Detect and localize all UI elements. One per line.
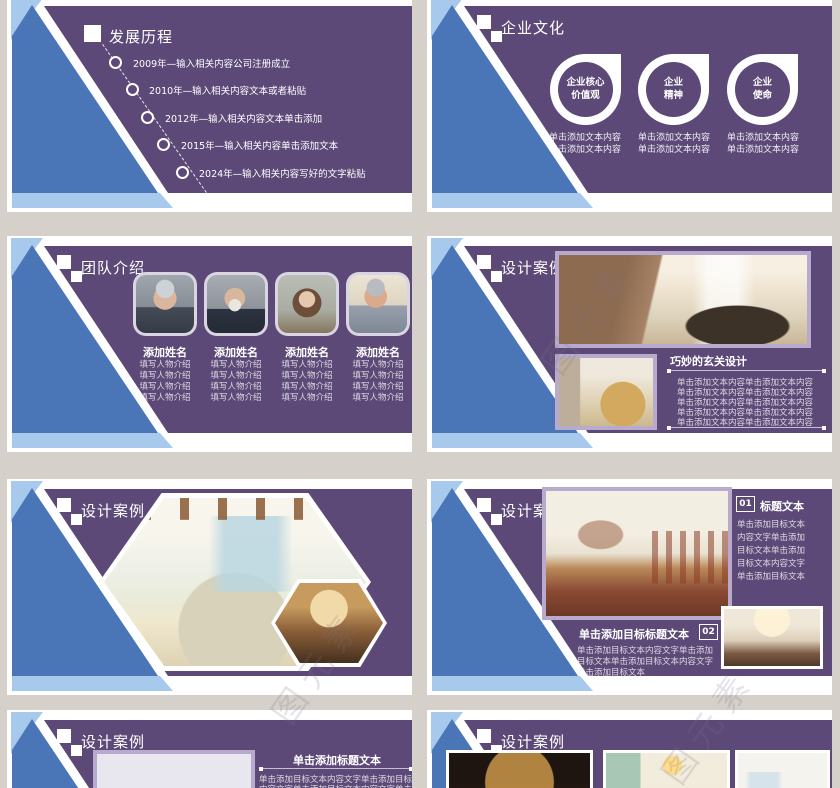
timeline-item: 2012年—输入相关内容文本单击添加 — [165, 111, 322, 125]
caption-line: 单击添加文本内容 — [549, 144, 621, 156]
block1-line: 单击添加目标文本 — [737, 518, 805, 530]
slide-thumb-case5[interactable]: 设计案例 — [427, 710, 832, 788]
divider — [668, 427, 825, 428]
slide-thumb-case1[interactable]: 设计案例 巧妙的玄关设计 单击添加文本内容单击添加文本内容 单击添加文本内容单击… — [427, 236, 832, 452]
title-square-icon — [57, 255, 71, 269]
member-photo-card — [275, 272, 339, 336]
photo-chinese-livingroom — [542, 487, 732, 620]
title-square-icon — [477, 15, 491, 29]
culture-caption: 单击添加文本内容 单击添加文本内容 — [727, 132, 799, 156]
slide-thumb-team[interactable]: 团队介绍 添加姓名 添加姓名 添加姓名 添加姓名 填写人物介绍 填写人物介绍 填… — [7, 236, 412, 452]
block1-line: 目标文本内容文字 — [737, 557, 805, 569]
culture-drop-shape: 企业核心 价值观 — [550, 54, 621, 125]
culture-circle-label: 企业 精神 — [646, 62, 701, 117]
slide-thumb-case3[interactable]: 设计案例 01 标题文本 单击添加目标文本 内容文字单击添加 目标文本单击添加 … — [427, 479, 832, 695]
timeline-item: 2024年—输入相关内容写好的文字粘贴 — [199, 166, 366, 180]
circle-label-line: 价值观 — [571, 90, 600, 102]
culture-drop-shape: 企业 精神 — [638, 54, 709, 125]
ceiling-room-image — [97, 754, 251, 788]
timeline-item: 2009年—输入相关内容公司注册成立 — [133, 56, 290, 70]
template-preview-canvas: 发展历程 2009年—输入相关内容公司注册成立 2010年—输入相关内容文本或者… — [0, 0, 840, 788]
member-photo-card — [346, 272, 410, 336]
divider — [668, 370, 825, 371]
stairs-image — [559, 358, 653, 426]
slide-title: 设计案例 — [81, 500, 145, 521]
photo-hallway-wardrobe — [603, 750, 730, 788]
slide-thumb-culture[interactable]: 企业文化 企业核心 价值观 企业 精神 企业 使命 单击添加文本内容 单击添加文… — [427, 0, 832, 212]
member-portrait — [349, 275, 407, 333]
member-photo-card — [204, 272, 268, 336]
title-square-icon — [477, 255, 491, 269]
member-desc: 填写人物介绍 填写人物介绍 填写人物介绍 填写人物介绍 — [336, 360, 412, 404]
photo-bar-room — [446, 750, 593, 788]
caption-line: 单击添加文本内容 — [638, 132, 710, 144]
title-square-icon — [477, 729, 491, 743]
slide-title: 团队介绍 — [81, 257, 145, 278]
culture-caption: 单击添加文本内容 单击添加文本内容 — [638, 132, 710, 156]
slide-title: 设计案例 — [501, 731, 565, 752]
timeline-dot — [157, 138, 170, 151]
chinese-room-small-image — [724, 609, 820, 666]
member-photo-card — [133, 272, 197, 336]
divider — [260, 768, 412, 769]
circle-label-line: 企业 — [664, 77, 683, 89]
culture-caption: 单击添加文本内容 单击添加文本内容 — [549, 132, 621, 156]
caption-line: 单击添加文本内容 — [549, 132, 621, 144]
timeline-dot — [126, 83, 139, 96]
culture-circle-label: 企业 使命 — [735, 62, 790, 117]
photo-entryway-stairs — [555, 354, 657, 430]
title-square-icon — [57, 498, 71, 512]
block1-line: 目标文本单击添加 — [737, 544, 805, 556]
timeline-dot — [141, 111, 154, 124]
block1-line: 单击添加目标文本 — [737, 570, 805, 582]
circle-label-line: 企业 — [753, 77, 772, 89]
case-heading: 巧妙的玄关设计 — [670, 353, 747, 369]
chinese-room-image — [546, 491, 728, 616]
circle-label-line: 使命 — [753, 90, 772, 102]
number-badge-01: 01 — [736, 496, 755, 512]
timeline-item: 2015年—输入相关内容单击添加文本 — [181, 138, 338, 152]
hallway-image — [606, 753, 727, 788]
member-portrait — [207, 275, 265, 333]
slide-thumb-case4[interactable]: 设计案例 单击添加标题文本 单击添加目标文本内容文字单击添加目标文本 内容文字单… — [7, 710, 412, 788]
case-heading: 单击添加标题文本 — [262, 752, 412, 768]
culture-circle-label: 企业核心 价值观 — [558, 62, 613, 117]
slide-title: 发展历程 — [109, 26, 173, 47]
culture-drop-shape: 企业 使命 — [727, 54, 798, 125]
timeline-item: 2010年—输入相关内容文本或者粘贴 — [149, 83, 306, 97]
caption-line: 单击添加文本内容 — [727, 144, 799, 156]
slide-title: 设计案例 — [81, 731, 145, 752]
photo-ceiling-room — [93, 750, 255, 788]
block1-heading: 标题文本 — [760, 498, 804, 514]
kitchen-image — [738, 753, 827, 788]
member-desc-line: 填写人物介绍 — [336, 371, 412, 382]
circle-label-line: 精神 — [664, 90, 683, 102]
member-desc-line: 填写人物介绍 — [336, 382, 412, 393]
case-body-line: 内容文字单击添加目标文本内容文字单击添加 — [259, 783, 412, 788]
slide-title: 企业文化 — [501, 17, 565, 38]
cozy-room-image — [275, 583, 383, 663]
caption-line: 单击添加文本内容 — [727, 132, 799, 144]
number-badge-02: 02 — [699, 624, 718, 640]
block1-line: 内容文字单击添加 — [737, 531, 805, 543]
member-portrait — [278, 275, 336, 333]
title-square-icon — [477, 498, 491, 512]
member-name: 添加姓名 — [336, 344, 412, 360]
living-room-image — [559, 255, 807, 344]
block2-line: 单击添加目标文本 — [577, 666, 645, 678]
member-desc-line: 填写人物介绍 — [336, 360, 412, 371]
slide-thumb-history[interactable]: 发展历程 2009年—输入相关内容公司注册成立 2010年—输入相关内容文本或者… — [7, 0, 412, 212]
title-square-icon — [57, 729, 71, 743]
bar-room-image — [449, 753, 590, 788]
member-portrait — [136, 275, 194, 333]
timeline-dot — [109, 56, 122, 69]
caption-line: 单击添加文本内容 — [638, 144, 710, 156]
slide-thumb-case2[interactable]: 设计案例 — [7, 479, 412, 695]
photo-kitchen — [735, 750, 830, 788]
title-square-icon — [84, 25, 101, 42]
member-desc-line: 填写人物介绍 — [336, 393, 412, 404]
photo-chinese-room-small — [721, 606, 823, 669]
photo-living-room — [555, 251, 811, 348]
circle-label-line: 企业核心 — [566, 77, 604, 89]
timeline-dot — [176, 166, 189, 179]
block2-heading: 单击添加目标标题文本 — [579, 626, 689, 642]
